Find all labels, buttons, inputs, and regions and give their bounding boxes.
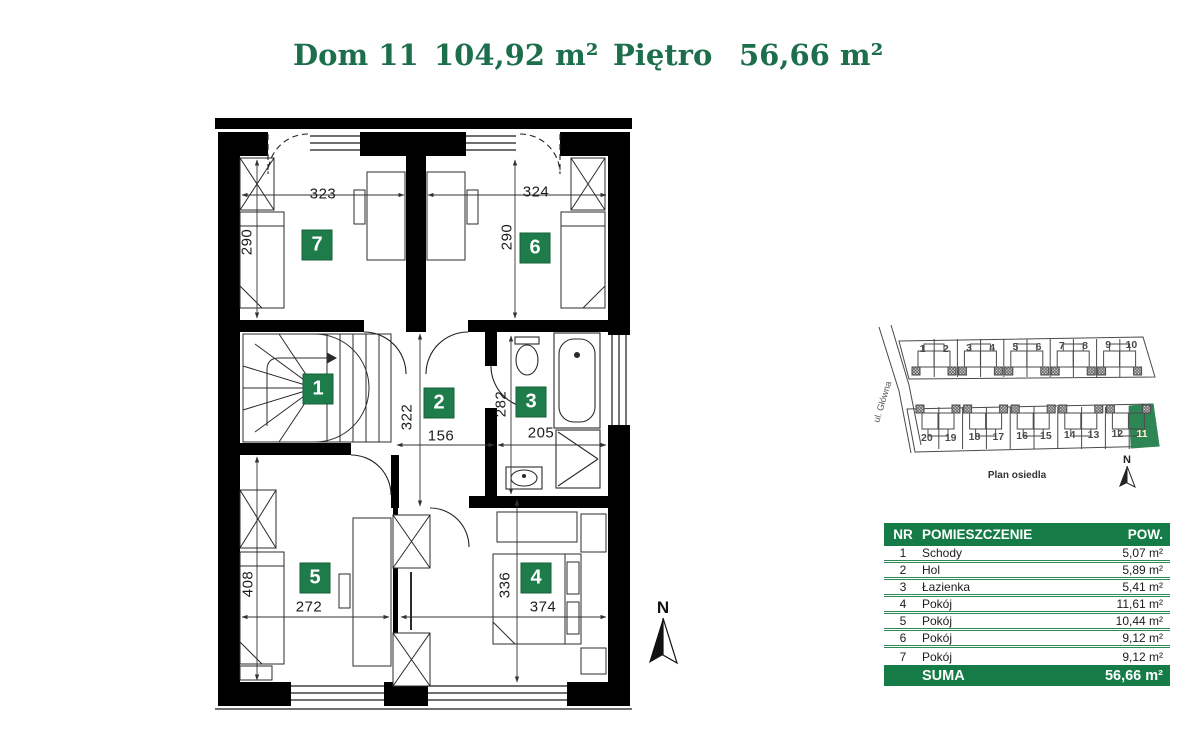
unit-number: 19 [945, 432, 957, 444]
total-label: SUMA [922, 668, 1105, 684]
unit-number: 20 [921, 432, 933, 444]
unit-number: 9 [1105, 339, 1111, 351]
site-plan-caption: Plan osiedla [988, 470, 1047, 481]
unit-number: 15 [1040, 430, 1052, 442]
room-nr: 6 [884, 631, 922, 645]
street-name: ul. Główna [871, 380, 893, 424]
unit-number: 5 [1012, 341, 1018, 353]
room-nr: 2 [884, 563, 922, 577]
house-footprints [912, 344, 1150, 436]
dim-label: 323 [310, 186, 337, 203]
room-nr: 1 [884, 546, 922, 560]
room-area: 5,89 m² [1122, 563, 1170, 577]
unit-number: 3 [966, 342, 972, 354]
toilet-icon [515, 337, 539, 375]
unit-number: 12 [1111, 428, 1123, 440]
floor-plan-drawing: N [215, 110, 695, 710]
table-row: 4 Pokój 11,61 m² [884, 597, 1170, 614]
site-plan: 1 2 3 4 5 6 7 8 9 10 20 19 18 17 16 15 1… [865, 325, 1165, 490]
north-arrow-icon: N [649, 598, 677, 663]
table-header-nr: NR [884, 527, 922, 542]
wardrobe-icon [240, 490, 276, 548]
room-area: 5,41 m² [1122, 580, 1170, 594]
table-row: 3 Łazienka 5,41 m² [884, 580, 1170, 597]
unit-number: 10 [1126, 339, 1138, 351]
desk [427, 172, 465, 260]
room-nr: 7 [884, 650, 922, 664]
room-badge-3: 3 [516, 387, 547, 418]
room-name: Pokój [922, 631, 1122, 645]
dim-label: 205 [528, 425, 555, 442]
table-header-row: NR POMIESZCZENIE POW. [884, 523, 1170, 546]
unit-number: 16 [1016, 430, 1028, 442]
compass-label: N [657, 598, 669, 617]
site-north-arrow-icon: N [1119, 454, 1135, 487]
unit-number-highlighted: 11 [1136, 428, 1147, 440]
unit-number: 4 [989, 342, 995, 354]
dim-label: 290 [239, 229, 256, 256]
unit-numbers-top: 1 2 3 4 5 6 7 8 9 10 [920, 339, 1138, 355]
room-area: 10,44 m² [1116, 614, 1170, 628]
room-area: 11,61 m² [1117, 597, 1170, 611]
room-area: 5,07 m² [1122, 546, 1170, 560]
wardrobe-icon [571, 158, 605, 210]
table-row: 7 Pokój 9,12 m² [884, 648, 1170, 665]
room-name: Schody [922, 546, 1122, 560]
table-row: 5 Pokój 10,44 m² [884, 614, 1170, 631]
floor-area: 56,66 m² [739, 38, 883, 72]
dim-label: 322 [399, 404, 416, 431]
chair [339, 574, 350, 608]
room-badge-6: 6 [520, 233, 551, 264]
room-badge-4: 4 [521, 563, 552, 594]
table-header-room: POMIESZCZENIE [922, 527, 1128, 542]
room-badge-7: 7 [302, 230, 333, 261]
dim-label: 374 [530, 599, 557, 616]
room-name: Pokój [922, 650, 1122, 664]
table-row: 1 Schody 5,07 m² [884, 546, 1170, 563]
unit-number: 7 [1059, 340, 1065, 352]
room-name: Łazienka [922, 580, 1122, 594]
dim-label: 272 [296, 599, 323, 616]
total-area: 56,66 m² [1105, 668, 1170, 684]
unit-number: 18 [969, 431, 981, 443]
room-name: Hol [922, 563, 1122, 577]
desk [353, 518, 391, 666]
bed-icon [561, 212, 605, 308]
shaft-icon [393, 515, 430, 686]
shower-icon [556, 430, 600, 488]
room-nr: 3 [884, 580, 922, 594]
room-nr: 5 [884, 614, 922, 628]
table-row: 6 Pokój 9,12 m² [884, 631, 1170, 648]
floor-label: Piętro [613, 38, 712, 72]
unit-number: 14 [1064, 429, 1076, 441]
table-row: 2 Hol 5,89 m² [884, 563, 1170, 580]
unit-number: 2 [943, 343, 949, 355]
page: Dom 11 104,92 m² Piętro 56,66 m² [0, 0, 1187, 738]
bed-icon [240, 212, 284, 308]
dim-label: 324 [523, 184, 550, 201]
room-badge-5: 5 [300, 563, 331, 594]
room-name: Pokój [922, 614, 1116, 628]
house-total-area: 104,92 m² [434, 38, 598, 72]
unit-number: 8 [1082, 340, 1088, 352]
room-badge-1: 1 [303, 374, 334, 405]
room-badge-2: 2 [424, 388, 455, 419]
dim-label: 156 [428, 428, 455, 445]
unit-number: 13 [1088, 429, 1100, 441]
room-area: 9,12 m² [1122, 650, 1170, 664]
room-area: 9,12 m² [1122, 631, 1170, 645]
dim-label: 290 [499, 224, 516, 251]
unit-number: 17 [992, 431, 1004, 443]
desk [367, 172, 405, 260]
bathtub-icon [554, 333, 600, 428]
dim-label: 408 [240, 571, 257, 598]
unit-number: 6 [1036, 341, 1042, 353]
room-nr: 4 [884, 597, 922, 611]
house-title: Dom 11 [293, 38, 419, 72]
table-total-row: SUMA 56,66 m² [884, 665, 1170, 686]
site-compass-label: N [1123, 454, 1131, 466]
dim-label: 282 [493, 391, 510, 418]
dim-label: 336 [497, 572, 514, 599]
room-name: Pokój [922, 597, 1117, 611]
table-header-area: POW. [1128, 527, 1170, 542]
unit-number: 1 [920, 343, 926, 355]
room-table: NR POMIESZCZENIE POW. 1 Schody 5,07 m² 2… [884, 523, 1170, 686]
